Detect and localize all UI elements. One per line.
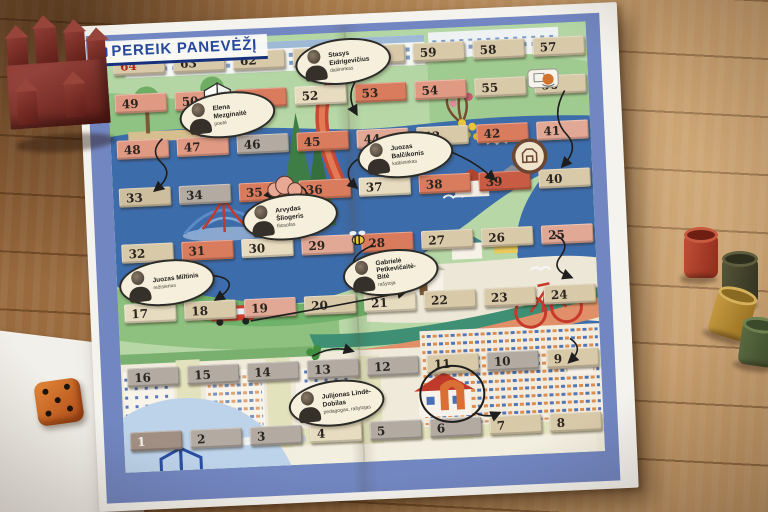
tile-56: 56 (534, 73, 587, 94)
board-title-text: PEREIK PANEVĖŽĮ (111, 36, 258, 60)
tile-14: 14 (247, 361, 300, 382)
tile-7: 7 (489, 414, 542, 435)
castle-piece (4, 22, 118, 149)
tile-2: 2 (190, 427, 243, 448)
tile-11: 11 (427, 353, 480, 374)
portrait-bust-icon (126, 269, 152, 303)
board-print: PEREIK PANEVĖŽĮ (86, 13, 621, 504)
tile-53: 53 (354, 82, 407, 103)
photo-scene: PEREIK PANEVĖŽĮ (0, 0, 768, 512)
board-paper: PEREIK PANEVĖŽĮ (77, 2, 638, 512)
tile-31: 31 (181, 240, 234, 261)
castle-tower-icon (34, 26, 59, 65)
tile-12: 12 (367, 355, 420, 376)
tile-15: 15 (187, 364, 240, 385)
tile-18: 18 (184, 300, 237, 321)
tile-37: 37 (358, 176, 411, 197)
tile-52: 52 (294, 84, 347, 105)
tile-13: 13 (307, 358, 360, 379)
portrait-bust-icon (303, 48, 329, 82)
pawn-red (684, 234, 718, 278)
tile-8: 8 (549, 411, 602, 432)
tile-40: 40 (538, 167, 591, 188)
tile-24: 24 (543, 283, 596, 304)
pawn-green (737, 322, 768, 369)
tile-23: 23 (484, 286, 537, 307)
tile-49: 49 (114, 93, 167, 114)
portrait-bust-icon (365, 141, 391, 175)
portrait-bust-icon (296, 389, 322, 423)
tile-20: 20 (304, 294, 357, 315)
tile-57: 57 (532, 36, 585, 57)
castle-tower-icon (64, 82, 86, 117)
tile-16: 16 (127, 366, 180, 387)
tile-34: 34 (179, 184, 232, 205)
tile-45: 45 (296, 130, 349, 151)
tile-1: 1 (130, 430, 183, 451)
tile-48: 48 (116, 138, 169, 159)
portrait-bust-icon (350, 259, 376, 293)
tile-59: 59 (412, 41, 465, 62)
tile-55: 55 (474, 76, 527, 97)
tile-25: 25 (541, 223, 594, 244)
tile-29: 29 (301, 234, 354, 255)
die (33, 377, 85, 427)
tile-54: 54 (414, 79, 467, 100)
tile-10: 10 (486, 350, 539, 371)
tile-27: 27 (421, 229, 474, 250)
tile-58: 58 (472, 38, 525, 59)
tile-39: 39 (478, 170, 531, 191)
tile-41: 41 (536, 119, 589, 140)
tile-26: 26 (481, 226, 534, 247)
city-seal-icon (513, 139, 546, 172)
tile-46: 46 (236, 133, 289, 154)
tile-5: 5 (369, 419, 422, 440)
portrait-bust-icon (250, 203, 276, 237)
tile-47: 47 (176, 136, 229, 157)
tile-9: 9 (546, 347, 599, 368)
tile-3: 3 (250, 425, 303, 446)
tile-33: 33 (119, 186, 172, 207)
board-map: 1234567891011121314151617181920212223242… (106, 21, 605, 472)
tile-22: 22 (424, 289, 477, 310)
seagull-icons (441, 139, 551, 274)
castle-tower-icon (16, 90, 38, 125)
portrait-bust-icon (187, 101, 213, 135)
portrait-medallion-52: Stasys Eidrigevičiusdailininkas (293, 33, 394, 90)
tile-6: 6 (429, 417, 482, 438)
tile-38: 38 (418, 173, 471, 194)
tile-42: 42 (476, 122, 529, 143)
tile-19: 19 (244, 297, 297, 318)
